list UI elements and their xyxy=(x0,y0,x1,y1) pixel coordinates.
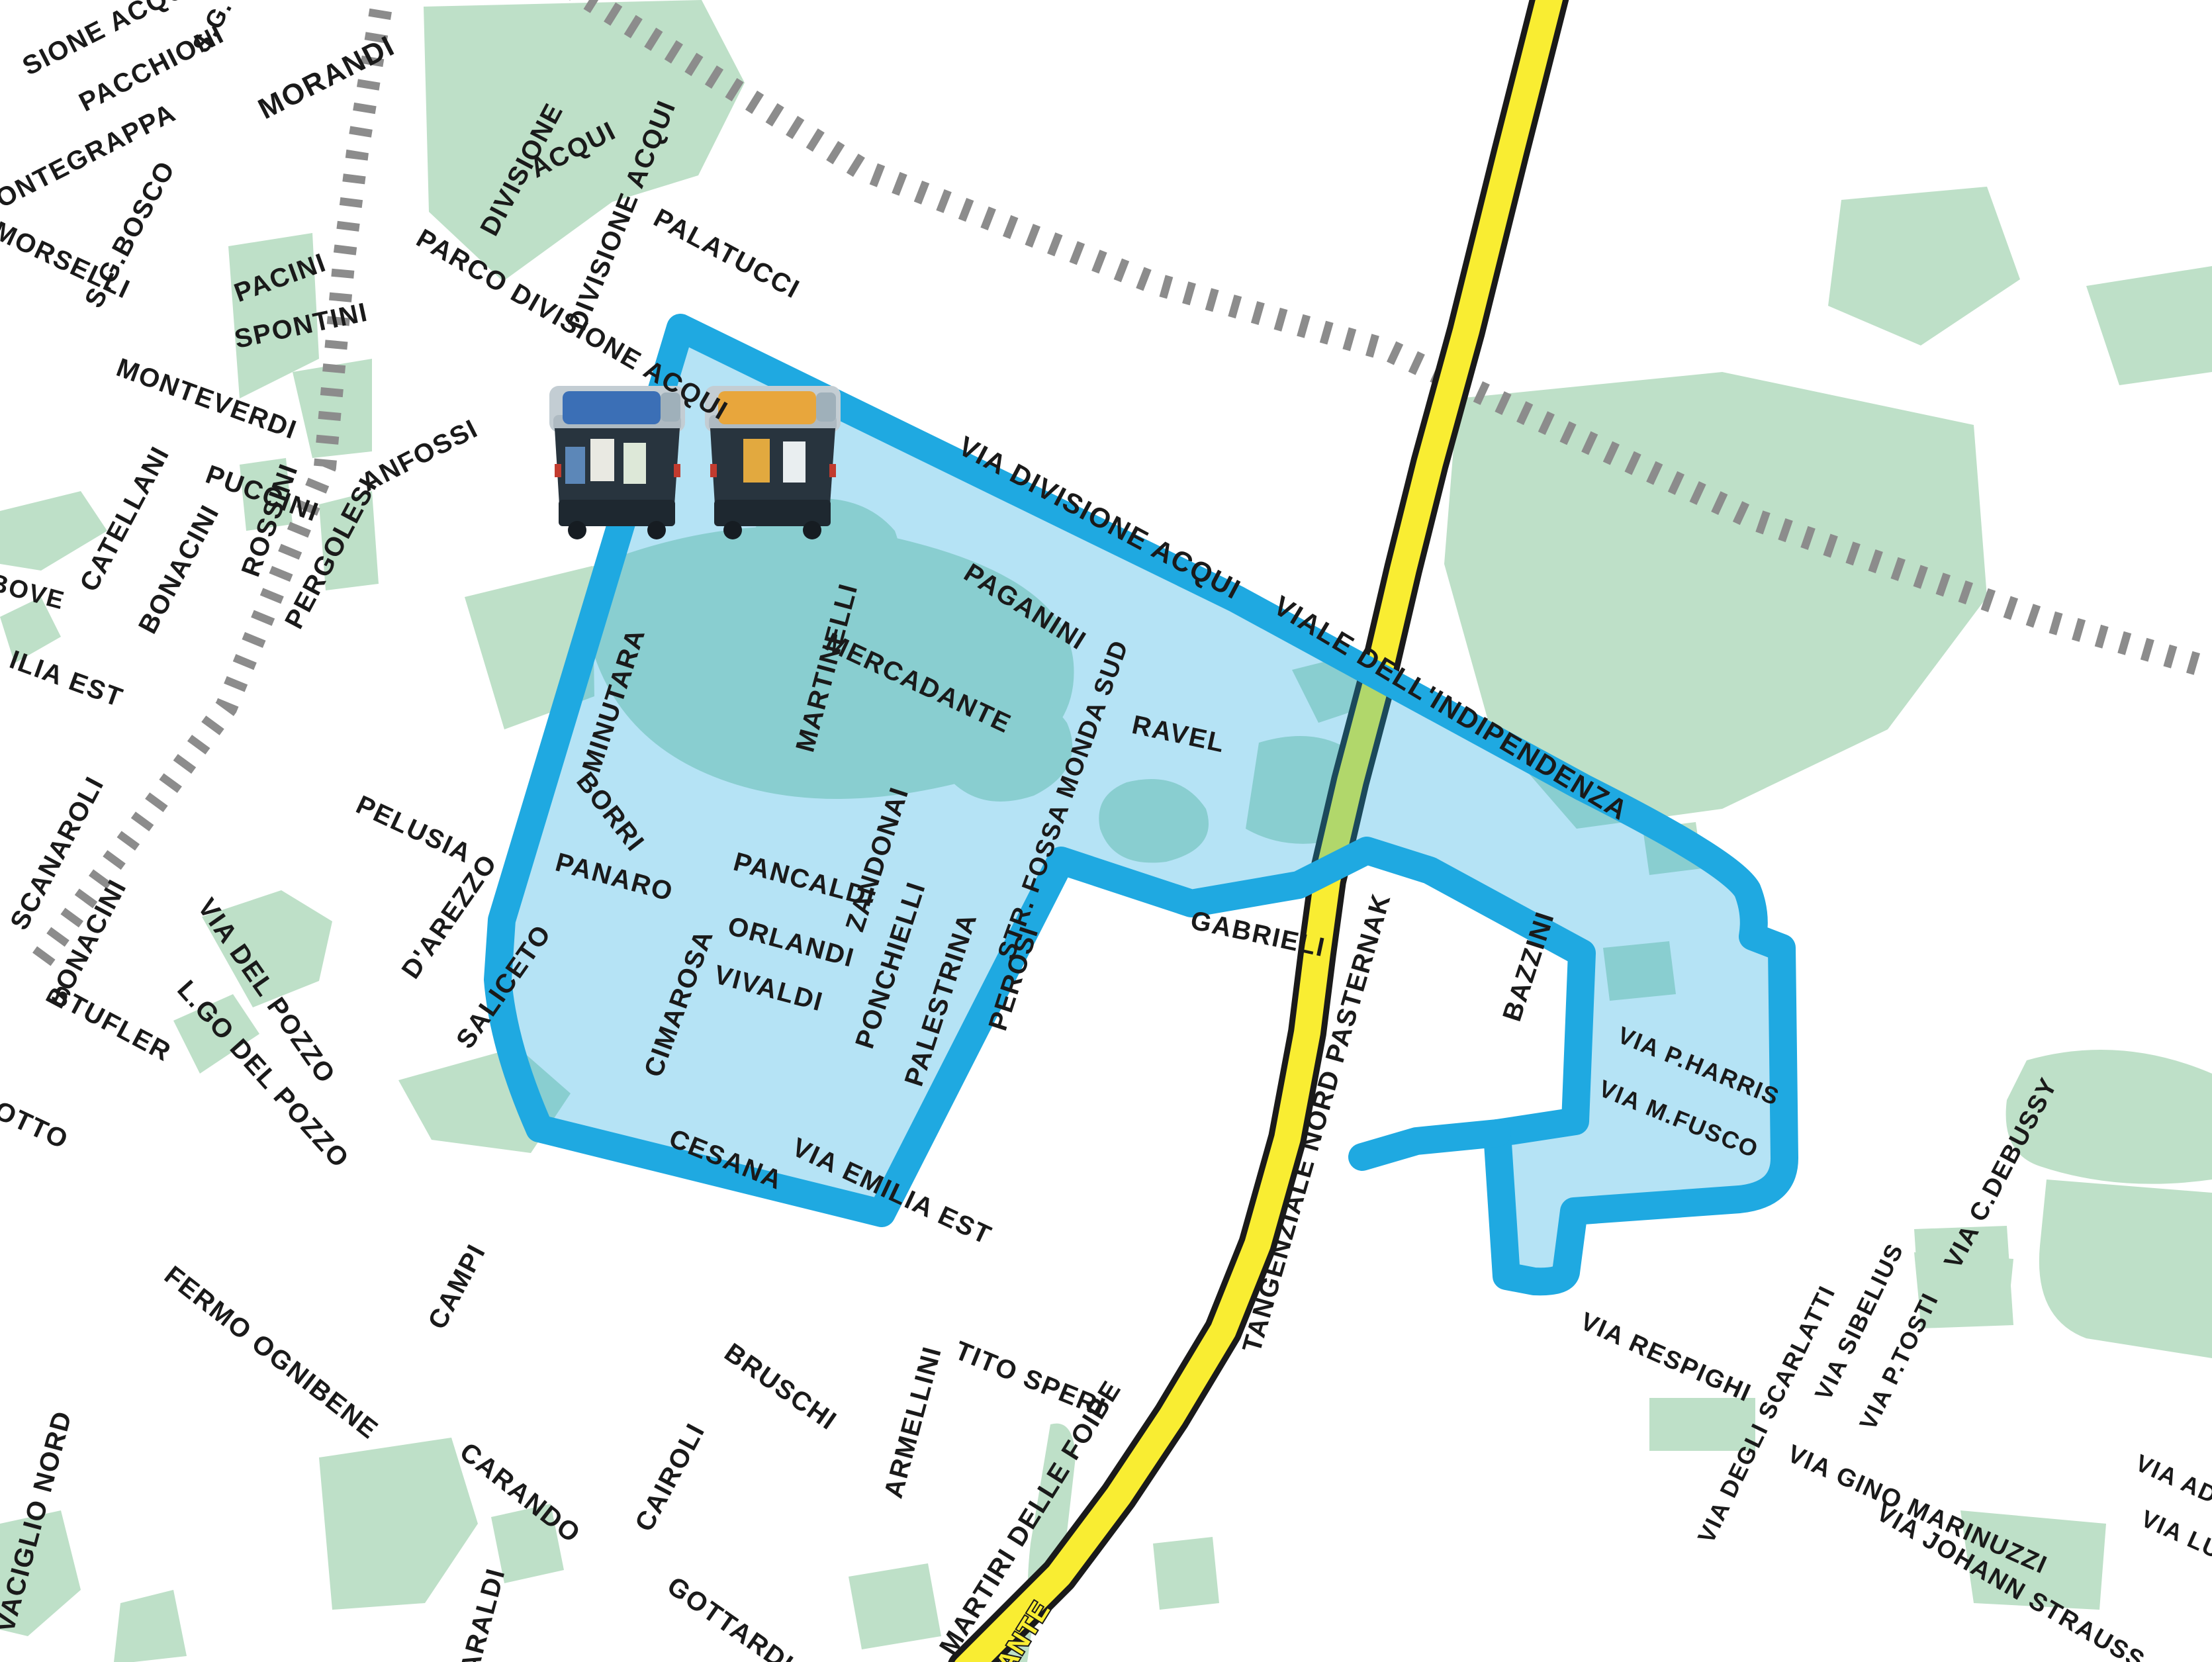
street-label: BRUSCHI xyxy=(719,1338,842,1436)
bin-lid-yellow xyxy=(718,391,816,424)
street-label: CAMPI xyxy=(422,1239,491,1334)
street-label: BONACINI xyxy=(133,500,225,638)
bin-sticker-blue xyxy=(565,447,585,484)
street-label: MORANDI xyxy=(253,29,400,125)
bin-wheel xyxy=(803,521,821,539)
street-label: GOTTARDI xyxy=(662,1571,799,1662)
street-label: VIA LUIG xyxy=(2137,1504,2212,1575)
street-label: CAIROLI xyxy=(629,1418,711,1536)
waste-bin-blue-lid xyxy=(549,386,685,539)
street-label: ILIA EST xyxy=(6,645,127,714)
bin-sticker-green xyxy=(623,443,646,484)
street-label: VIA RESPIGHI xyxy=(1576,1307,1755,1407)
street-label: FERMO OGNIBENE xyxy=(159,1260,384,1445)
street-label: VIA GINO MARINUZZI xyxy=(1783,1440,2051,1579)
bin-sticker-yellow xyxy=(743,439,770,483)
bin-lid-corner xyxy=(816,392,836,422)
street-label: ARMELLINI xyxy=(879,1343,948,1501)
bin-stripe-red xyxy=(710,464,717,477)
collection-zone-border-stub xyxy=(1362,1133,1497,1157)
bin-sticker-white xyxy=(783,441,806,483)
bin-wheel xyxy=(723,521,742,539)
bin-body xyxy=(710,428,835,505)
city-map: SIONE ACQUIPACCHIONIMORANDIMONTEGRAPPAS.… xyxy=(0,0,2212,1662)
bin-wheel xyxy=(647,521,666,539)
street-label: S.G. xyxy=(187,0,238,57)
bin-stripe-red2 xyxy=(829,464,836,477)
street-label: VIA ADRI xyxy=(2131,1449,2212,1520)
bin-stripe-red2 xyxy=(674,464,680,477)
bin-stripe-red xyxy=(555,464,561,477)
street-label: OTTO xyxy=(0,1095,73,1155)
bin-sticker-white xyxy=(590,439,614,481)
bin-lid-blue xyxy=(563,391,661,424)
street-label: STUFLER xyxy=(46,980,176,1068)
bin-wheel xyxy=(568,521,586,539)
street-label: PALATUCCI xyxy=(649,203,804,304)
street-label: ARALDI xyxy=(455,1565,511,1662)
map-viewport: SIONE ACQUIPACCHIONIMORANDIMONTEGRAPPAS.… xyxy=(0,0,2212,1662)
street-label: PELUSIA xyxy=(351,790,476,869)
